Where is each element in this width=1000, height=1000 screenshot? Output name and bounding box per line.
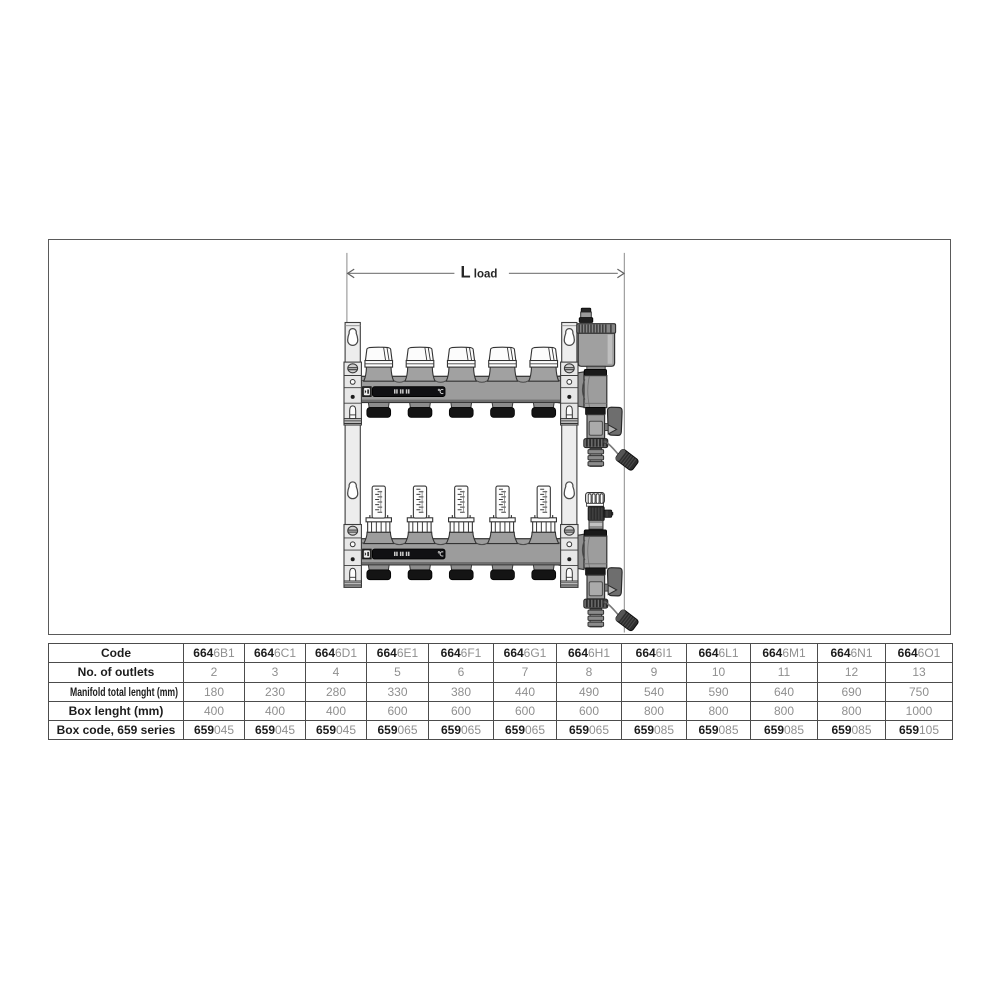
svg-text:L: L [461,264,471,282]
svg-text:load: load [474,269,498,281]
